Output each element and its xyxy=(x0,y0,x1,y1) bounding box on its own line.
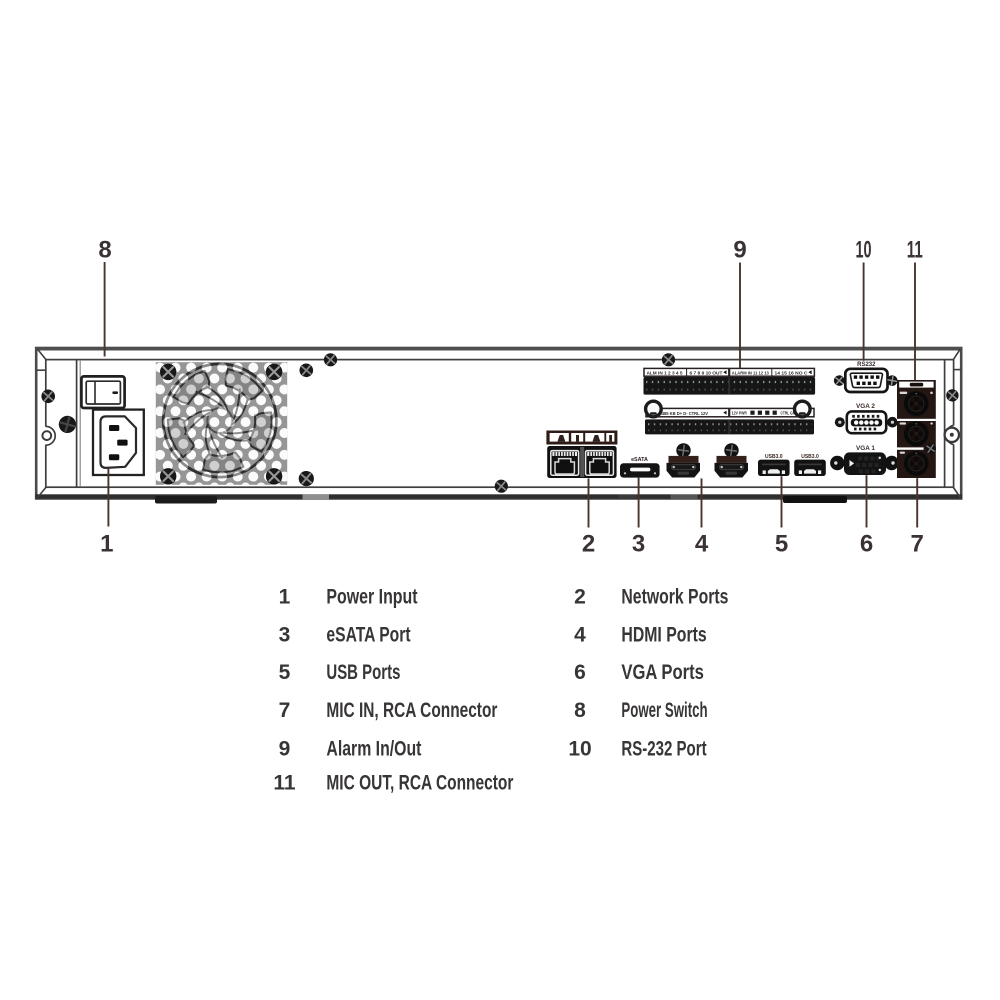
svg-text:HDMI Ports: HDMI Ports xyxy=(621,623,706,646)
svg-text:RS-232 Port: RS-232 Port xyxy=(621,737,706,760)
svg-text:6: 6 xyxy=(574,661,586,684)
svg-text:VGA Ports: VGA Ports xyxy=(621,661,704,684)
svg-text:eSATA: eSATA xyxy=(631,457,648,463)
svg-text:VGA 2: VGA 2 xyxy=(856,403,875,410)
svg-text:2: 2 xyxy=(582,531,595,558)
svg-text:Power Switch: Power Switch xyxy=(621,699,707,722)
svg-text:10: 10 xyxy=(856,237,872,264)
svg-text:9: 9 xyxy=(733,237,746,264)
svg-text:2: 2 xyxy=(574,585,586,608)
svg-text:VGA 1: VGA 1 xyxy=(856,445,875,452)
svg-text:3: 3 xyxy=(632,531,645,558)
svg-text:5: 5 xyxy=(279,661,291,684)
svg-text:eSATA Port: eSATA Port xyxy=(326,623,410,646)
svg-text:14 15 16 NO C: 14 15 16 NO C xyxy=(775,371,809,376)
svg-text:Power Input: Power Input xyxy=(326,585,417,608)
svg-text:8: 8 xyxy=(98,237,111,264)
svg-text:7: 7 xyxy=(911,531,924,558)
svg-text:1: 1 xyxy=(279,585,291,608)
svg-text:10: 10 xyxy=(568,737,591,760)
svg-text:ALARM IN 11 12 13: ALARM IN 11 12 13 xyxy=(732,371,769,376)
svg-text:4: 4 xyxy=(574,623,586,646)
svg-text:1: 1 xyxy=(100,531,113,558)
svg-text:Alarm In/Out: Alarm In/Out xyxy=(326,737,421,760)
svg-text:MIC IN, RCA Connector: MIC IN, RCA Connector xyxy=(326,699,497,722)
svg-text:Network Ports: Network Ports xyxy=(621,585,728,608)
svg-text:4: 4 xyxy=(695,531,709,558)
svg-text:USB Ports: USB Ports xyxy=(326,661,400,684)
svg-text:5: 5 xyxy=(775,531,788,558)
svg-text:8: 8 xyxy=(574,699,586,722)
svg-text:USB3.0: USB3.0 xyxy=(765,454,783,460)
svg-text:9: 9 xyxy=(279,737,291,760)
svg-text:11: 11 xyxy=(273,772,296,795)
svg-text:RS485 KB D+ D- CTRL 12V: RS485 KB D+ D- CTRL 12V xyxy=(656,411,709,416)
svg-text:USB3.0: USB3.0 xyxy=(801,454,819,460)
svg-text:MIC OUT, RCA Connector: MIC OUT, RCA Connector xyxy=(326,772,513,795)
svg-text:ALM IN 1 2 3 4 5: ALM IN 1 2 3 4 5 xyxy=(647,371,683,376)
svg-text:6: 6 xyxy=(860,531,873,558)
svg-text:12V PWR: 12V PWR xyxy=(732,411,747,416)
svg-text:6 7 8 9 10 OUT: 6 7 8 9 10 OUT xyxy=(690,371,723,376)
svg-text:RS232: RS232 xyxy=(857,362,876,368)
svg-text:7: 7 xyxy=(279,699,291,722)
svg-text:3: 3 xyxy=(279,623,291,646)
svg-text:11: 11 xyxy=(907,237,923,264)
